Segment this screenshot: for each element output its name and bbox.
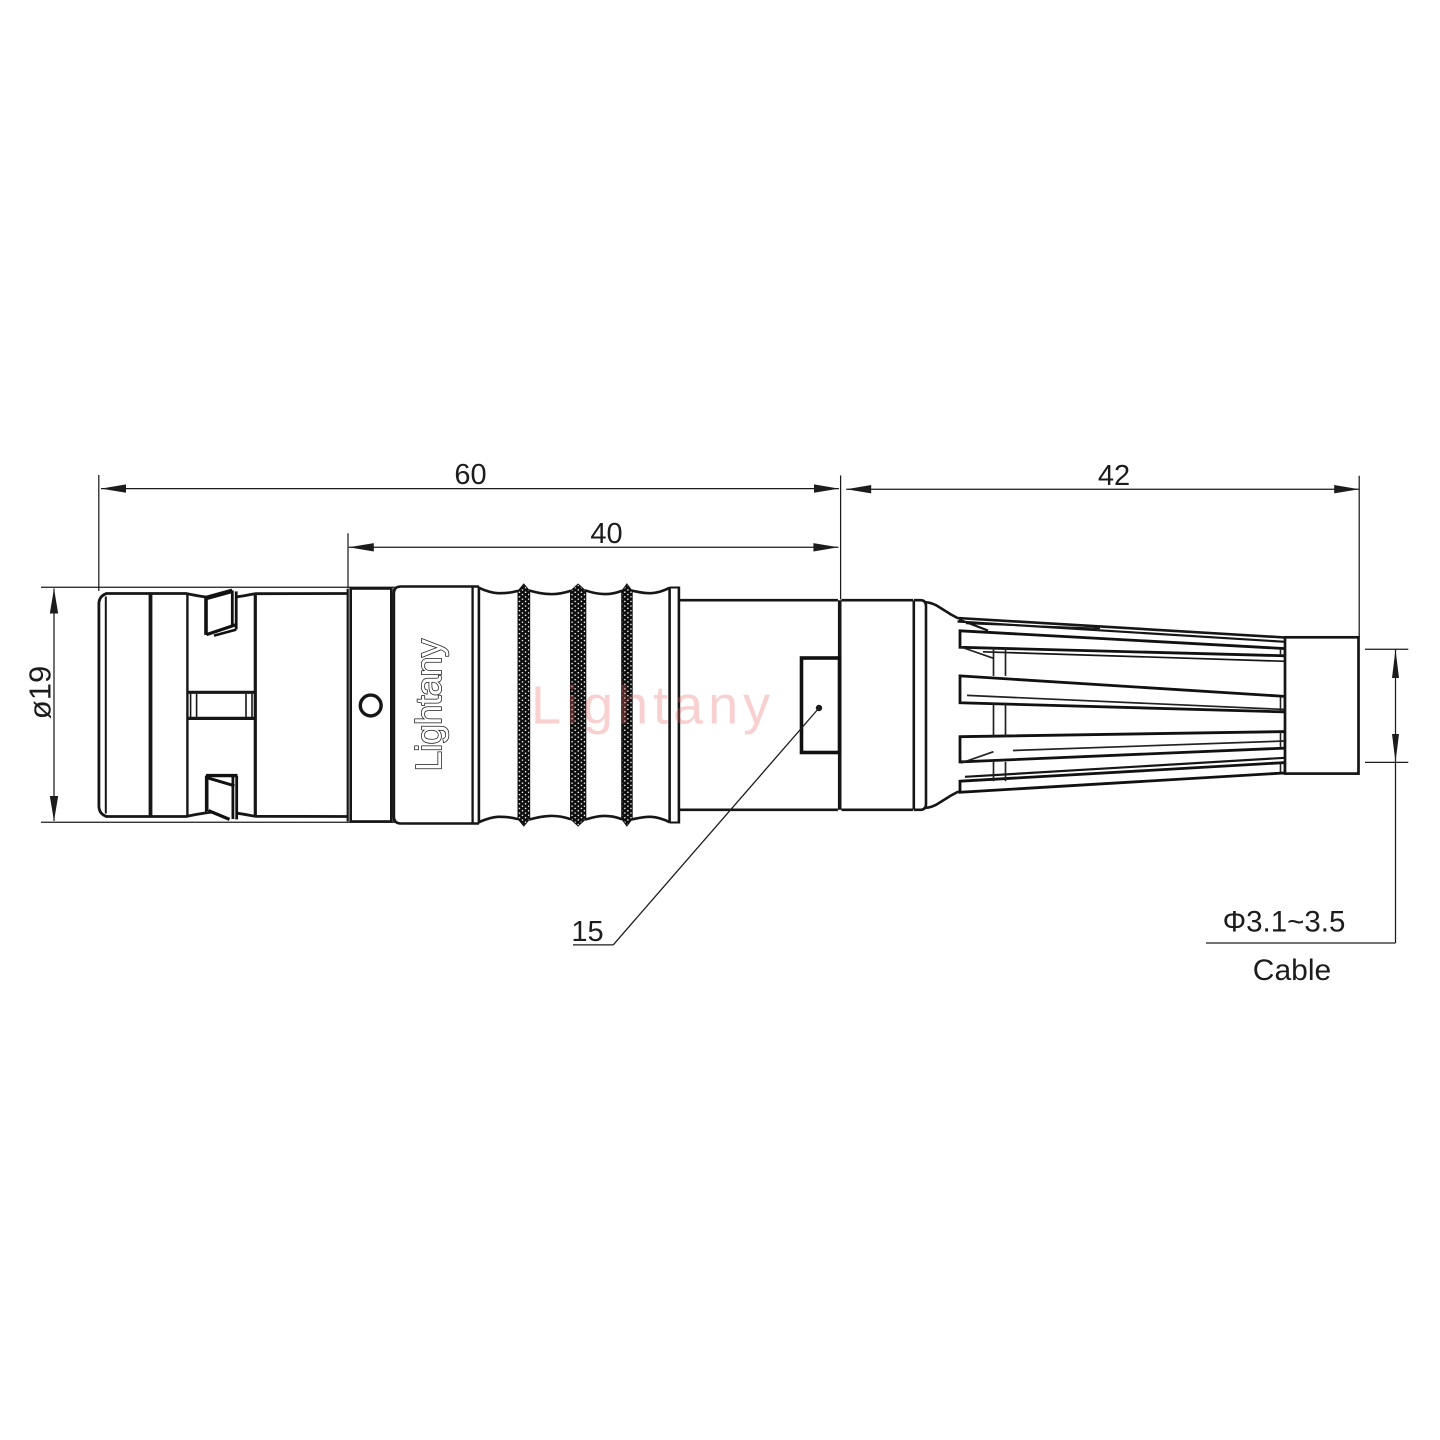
svg-text:Lightany: Lightany <box>408 638 449 771</box>
svg-text:42: 42 <box>1098 460 1130 492</box>
svg-text:60: 60 <box>454 459 486 491</box>
svg-text:Φ3.1~3.5: Φ3.1~3.5 <box>1223 906 1346 939</box>
svg-text:40: 40 <box>590 518 622 550</box>
svg-text:Lightany: Lightany <box>531 676 775 736</box>
svg-text:Cable: Cable <box>1253 954 1331 987</box>
svg-text:15: 15 <box>571 916 603 948</box>
svg-text:ø19: ø19 <box>23 666 58 719</box>
